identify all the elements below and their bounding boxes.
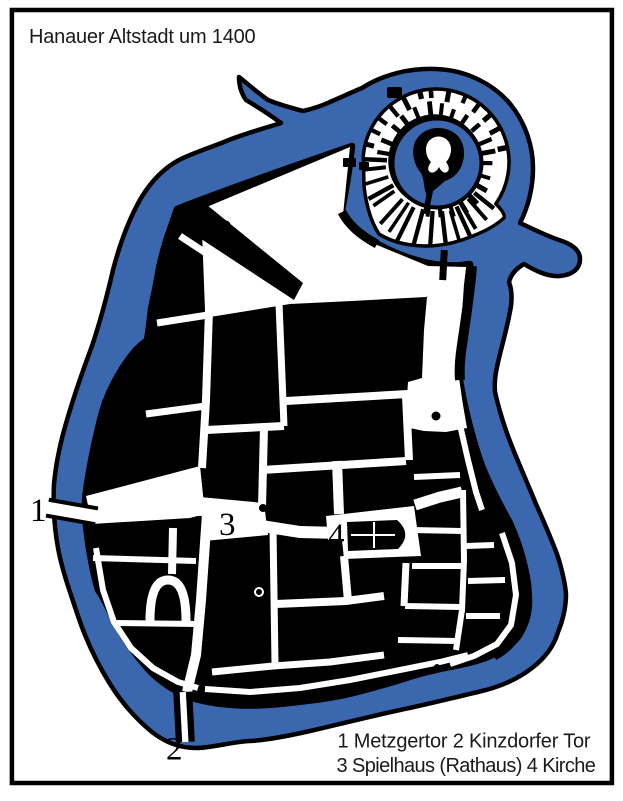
svg-text:1 Metzgertor 2 Kinzdorfer Tor: 1 Metzgertor 2 Kinzdorfer Tor (338, 731, 591, 753)
svg-text:4: 4 (328, 518, 345, 554)
svg-text:Hanauer Altstadt um 1400: Hanauer Altstadt um 1400 (29, 26, 256, 48)
svg-text:1: 1 (30, 493, 47, 529)
svg-text:3 Spielhaus (Rathaus) 4 Kirche: 3 Spielhaus (Rathaus) 4 Kirche (337, 755, 596, 777)
svg-text:3: 3 (219, 507, 236, 543)
svg-text:2: 2 (166, 732, 183, 768)
